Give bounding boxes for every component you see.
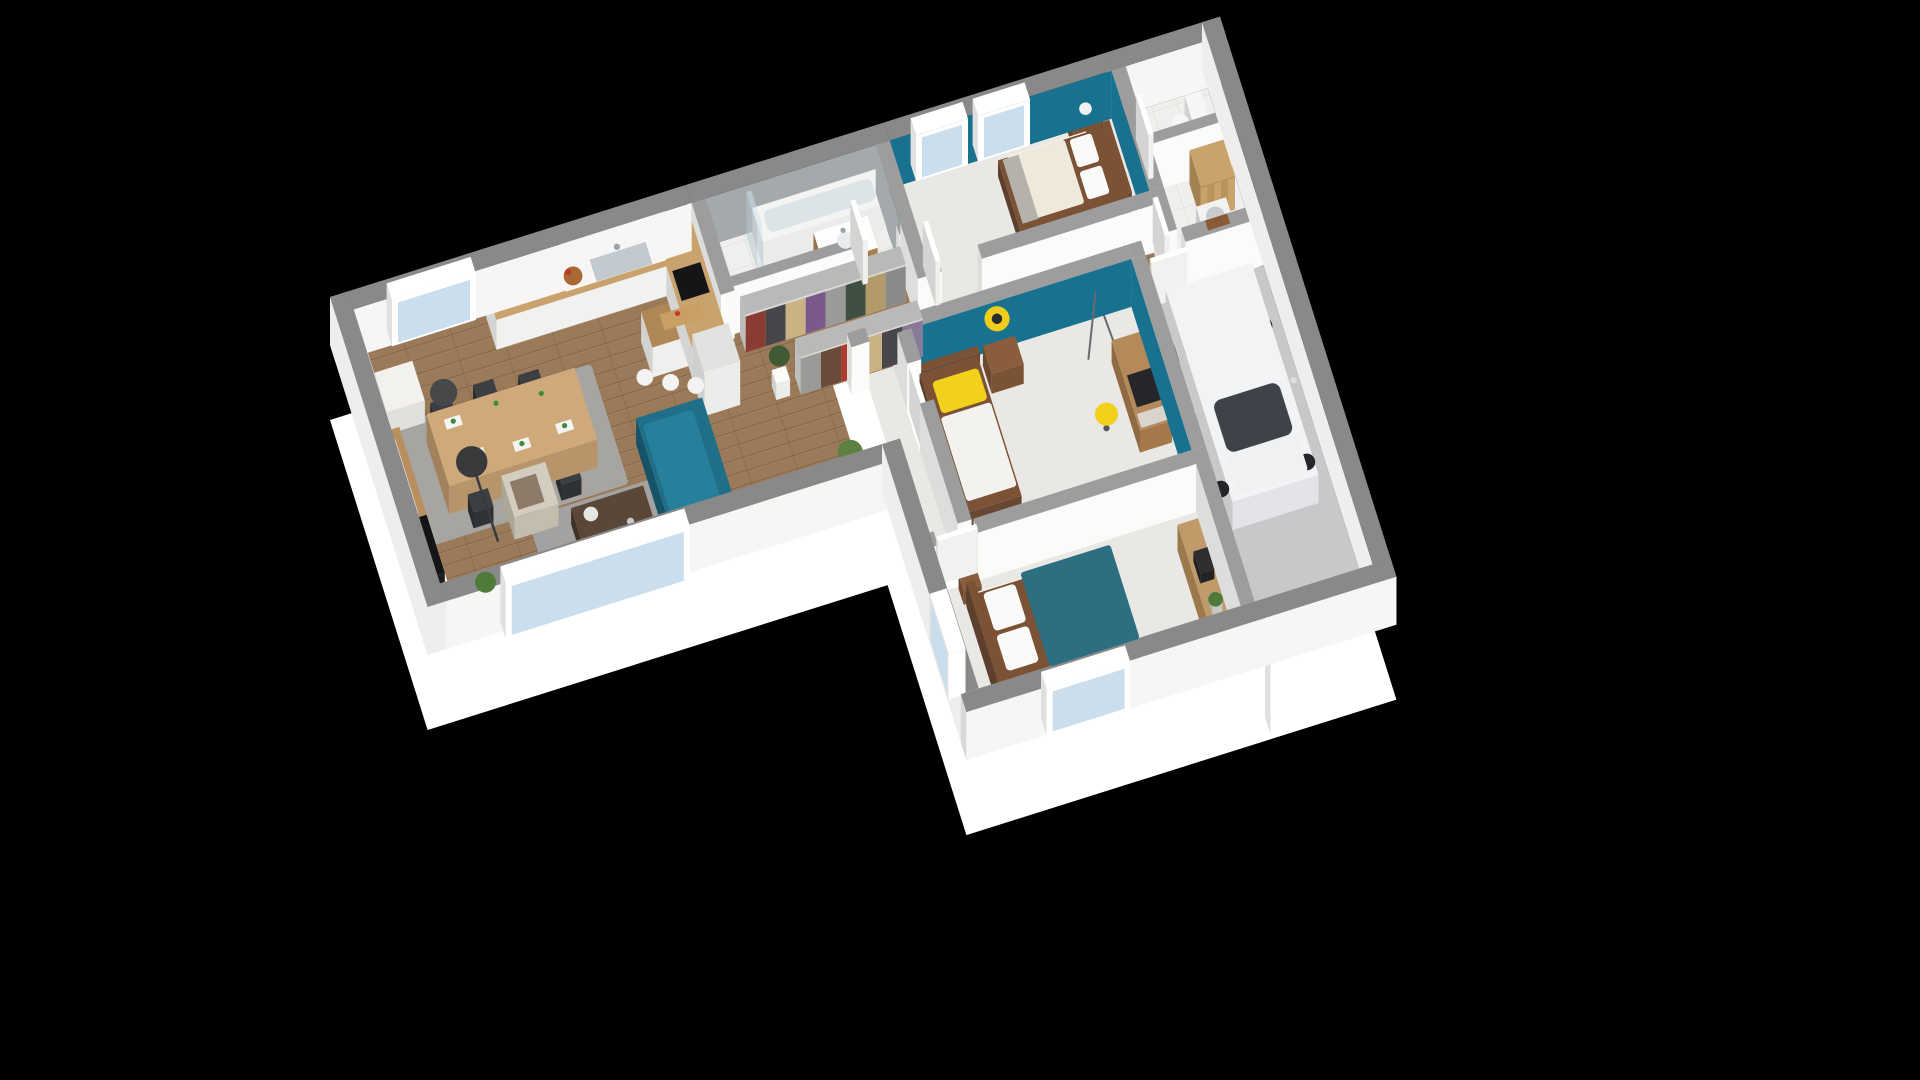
wardrobe-rack-north-stripe — [846, 279, 866, 321]
floorplan-3d-render — [0, 0, 1920, 1080]
wardrobe-rack-north-stripe — [886, 266, 906, 308]
drying-rack-stripe — [1228, 178, 1235, 212]
wardrobe-rack-south-stripe — [821, 346, 841, 388]
wardrobe-rack-north-stripe — [786, 298, 806, 340]
shower-glass-south-face — [757, 224, 762, 270]
wardrobe-rack-north-stripe — [746, 310, 766, 352]
door-bedroom1-south-face — [936, 260, 941, 306]
wardrobe-rack-south-stripe — [801, 352, 821, 394]
wall-corridor-s-a-south-face — [851, 341, 869, 395]
floorplan-stage — [0, 0, 1920, 1080]
wardrobe-rack-north-stripe — [806, 291, 826, 333]
wardrobe-rack-north-stripe — [826, 285, 846, 327]
wall-w-living-south-face — [428, 601, 446, 655]
door-bathroom-south-face — [863, 239, 868, 285]
door-wc-south-face — [1149, 134, 1154, 180]
wardrobe-rack-north-stripe — [866, 273, 886, 315]
wardrobe-rack-north-stripe — [766, 304, 786, 346]
window-bedroom3-w-south-face — [949, 648, 966, 699]
